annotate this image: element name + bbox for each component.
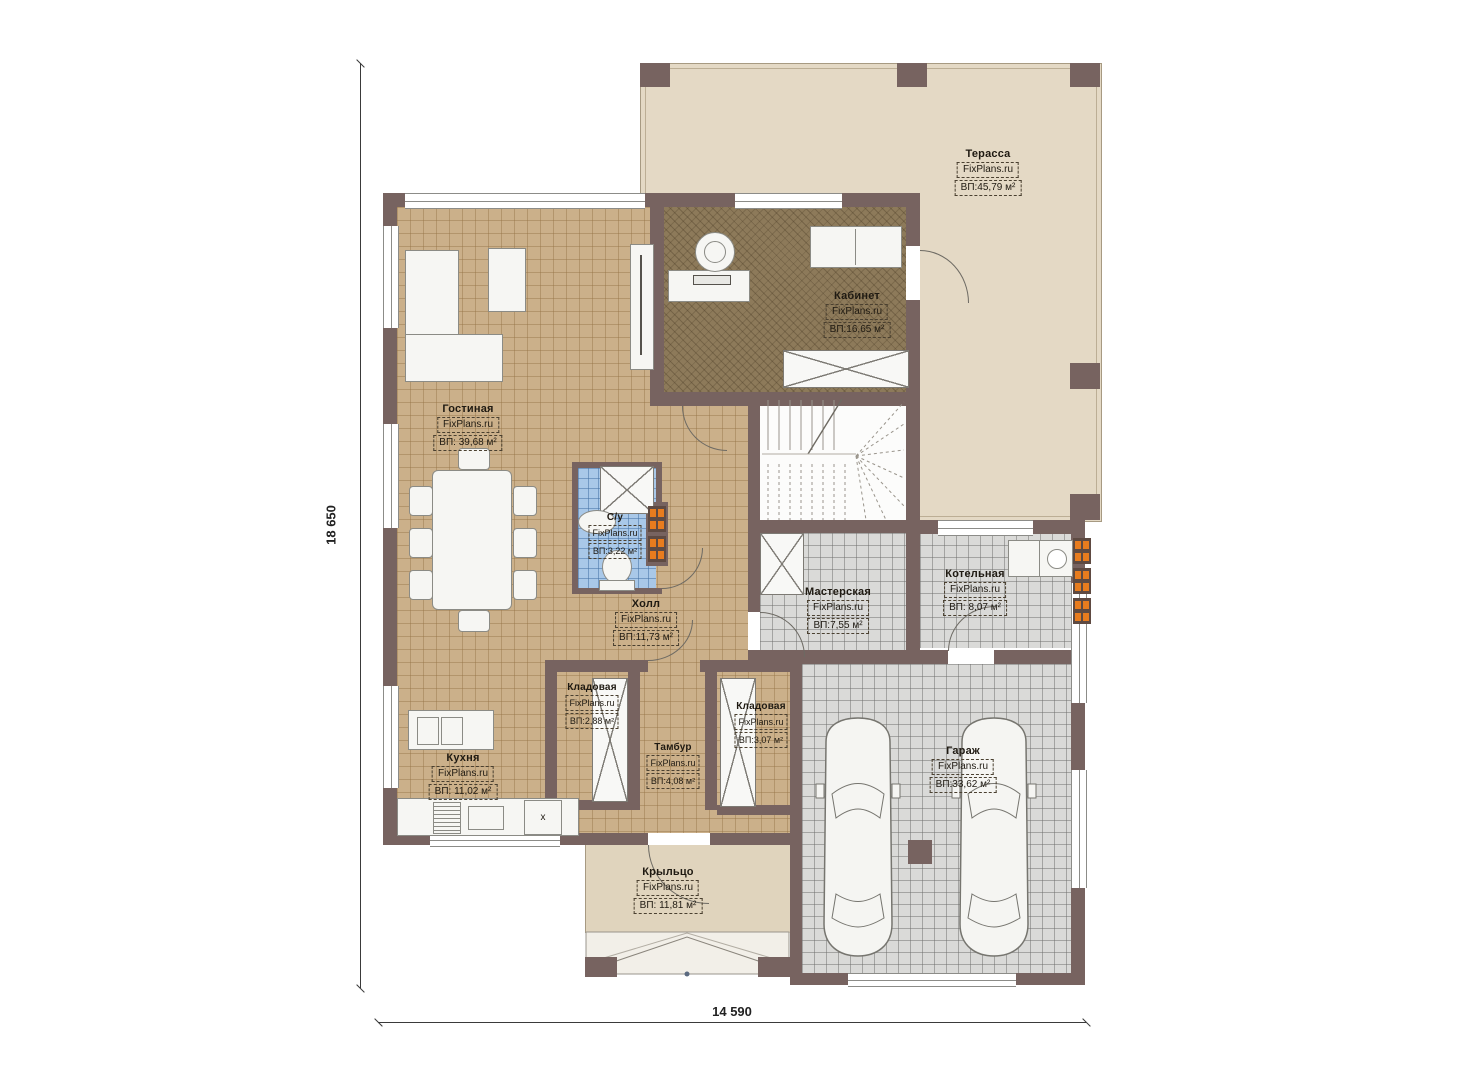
chair: [458, 610, 490, 632]
terrace-post: [1070, 363, 1100, 389]
wardrobe: [783, 350, 909, 388]
tv-console: [630, 244, 654, 370]
floor-plan-canvas: x: [0, 0, 1474, 1080]
room-label-hall: Холл FixPlans.ru ВП:11,73 м²: [613, 598, 679, 646]
room-label-office: Кабинет FixPlans.ru ВП:16,65 м²: [824, 290, 891, 338]
room-name: Кладовая: [565, 682, 618, 693]
room-name: Гараж: [930, 745, 997, 757]
room-area: ВП:45,79 м²: [955, 180, 1022, 196]
chair: [458, 448, 490, 470]
dimension-label-vertical: 18 650: [324, 505, 339, 545]
chair: [409, 570, 433, 600]
window: [383, 686, 399, 788]
chair-seat: [704, 241, 726, 263]
room-label-kitchen: Кухня FixPlans.ru ВП: 11,02 м²: [429, 752, 498, 800]
room-area: ВП:7,55 м²: [807, 618, 868, 634]
room-label-terrace: Терасса FixPlans.ru ВП:45,79 м²: [955, 148, 1022, 196]
radiator-icon: [1073, 568, 1091, 594]
sink-icon: [468, 806, 504, 830]
room-name: Холл: [613, 598, 679, 610]
tv-icon: [640, 255, 642, 355]
terrace-post: [1070, 63, 1100, 87]
terrace-post: [897, 63, 927, 87]
room-area: ВП:11,73 м²: [613, 630, 679, 646]
room-site: FixPlans.ru: [944, 582, 1006, 598]
room-name: Кабинет: [824, 290, 891, 302]
dimension-line-horizontal: [378, 1022, 1086, 1023]
kitchen-island: [408, 710, 494, 750]
wall: [602, 833, 648, 845]
room-label-storage2: Кладовая FixPlans.ru ВП:3,07 м²: [734, 701, 787, 748]
room-label-bath: С/у FixPlans.ru ВП:3,22 м²: [588, 512, 641, 559]
room-area: ВП:2,88 м²: [566, 713, 618, 729]
room-site: FixPlans.ru: [432, 766, 494, 782]
dishwasher: [433, 802, 461, 834]
chair: [513, 486, 537, 516]
room-site: FixPlans.ru: [957, 162, 1019, 178]
room-name: Гостиная: [433, 403, 502, 415]
wall: [628, 672, 640, 810]
shower: [600, 466, 654, 514]
room-area: ВП: 11,02 м²: [429, 784, 498, 800]
room-name: Крыльцо: [634, 866, 703, 878]
window: [1071, 770, 1087, 888]
room-name: Котельная: [943, 568, 1007, 580]
room-area: ВП: 39,68 м²: [433, 435, 502, 451]
cooktop-icon: [417, 717, 439, 745]
chair: [513, 570, 537, 600]
washer-mark: x: [541, 812, 546, 823]
chair: [409, 486, 433, 516]
office-chair: [695, 232, 735, 272]
wall: [994, 650, 1071, 664]
boiler-sink-icon: [1047, 549, 1067, 569]
wall: [700, 660, 790, 672]
room-site: FixPlans.ru: [807, 600, 869, 616]
sofa: [405, 334, 503, 382]
office-sofa: [810, 226, 902, 268]
room-area: ВП:3,22 м²: [589, 543, 641, 559]
room-area: ВП:33,62 м²: [930, 777, 997, 793]
room-site: FixPlans.ru: [437, 417, 499, 433]
window: [383, 226, 399, 328]
boiler-counter: [1008, 540, 1073, 577]
wall: [545, 660, 648, 672]
terrace-post: [640, 63, 670, 87]
radiator-icon: [1073, 538, 1091, 564]
dining-table: [432, 470, 512, 610]
window: [405, 193, 645, 209]
chair: [513, 528, 537, 558]
room-site: FixPlans.ru: [826, 304, 888, 320]
room-site: FixPlans.ru: [565, 695, 618, 711]
closet: [760, 533, 804, 595]
room-site: FixPlans.ru: [646, 755, 699, 771]
garage-door: [848, 973, 1016, 987]
room-site: FixPlans.ru: [932, 759, 994, 775]
room-site: FixPlans.ru: [734, 714, 787, 730]
radiator-icon: [1073, 598, 1091, 624]
wall: [748, 533, 760, 612]
room-label-boiler: Котельная FixPlans.ru ВП: 8,07 м²: [943, 568, 1007, 616]
garage-post: [908, 840, 932, 864]
door-opening: [906, 246, 920, 300]
room-site: FixPlans.ru: [637, 880, 699, 896]
room-site: FixPlans.ru: [615, 612, 677, 628]
dimension-line-vertical: [360, 63, 361, 988]
room-name: С/у: [588, 512, 641, 523]
counter-divider: [1039, 541, 1040, 576]
room-area: ВП:3,07 м²: [735, 732, 787, 748]
toilet-tank: [599, 580, 635, 591]
porch-post: [758, 957, 790, 977]
wall: [748, 398, 760, 524]
room-label-living: Гостиная FixPlans.ru ВП: 39,68 м²: [433, 403, 502, 451]
monitor-icon: [693, 275, 731, 285]
room-label-workshop: Мастерская FixPlans.ru ВП:7,55 м²: [805, 586, 871, 634]
room-label-garage: Гараж FixPlans.ru ВП:33,62 м²: [930, 745, 997, 793]
desk: [668, 270, 750, 302]
cooktop-icon: [441, 717, 463, 745]
coffee-table: [488, 248, 526, 312]
bathroom-wall: [572, 462, 578, 594]
room-area: ВП: 8,07 м²: [943, 600, 1007, 616]
room-label-vestibule: Тамбур FixPlans.ru ВП:4,08 м²: [646, 742, 699, 789]
wall: [705, 672, 717, 810]
window: [383, 424, 399, 528]
room-site: FixPlans.ru: [588, 525, 641, 541]
room-name: Тамбур: [646, 742, 699, 753]
chair: [409, 528, 433, 558]
window: [938, 520, 1033, 536]
room-area: ВП:16,65 м²: [824, 322, 891, 338]
radiator-icon: [648, 536, 666, 562]
window: [735, 193, 842, 209]
room-name: Кладовая: [734, 701, 787, 712]
dimension-label-horizontal: 14 590: [712, 1004, 752, 1019]
room-name: Мастерская: [805, 586, 871, 598]
room-name: Терасса: [955, 148, 1022, 160]
room-area: ВП: 11,81 м²: [634, 898, 703, 914]
washer: x: [524, 800, 562, 835]
wall: [710, 833, 790, 845]
terrace-post: [1070, 494, 1100, 520]
sofa-divider: [855, 229, 856, 265]
room-label-storage1: Кладовая FixPlans.ru ВП:2,88 м²: [565, 682, 618, 729]
room-name: Кухня: [429, 752, 498, 764]
wall: [906, 193, 920, 246]
staircase: [760, 398, 906, 522]
room-label-porch: Крыльцо FixPlans.ru ВП: 11,81 м²: [634, 866, 703, 914]
porch-post: [585, 957, 617, 977]
wall: [790, 664, 802, 985]
radiator-icon: [648, 506, 666, 532]
room-area: ВП:4,08 м²: [647, 773, 699, 789]
door-opening: [748, 612, 760, 650]
car: [812, 714, 904, 962]
